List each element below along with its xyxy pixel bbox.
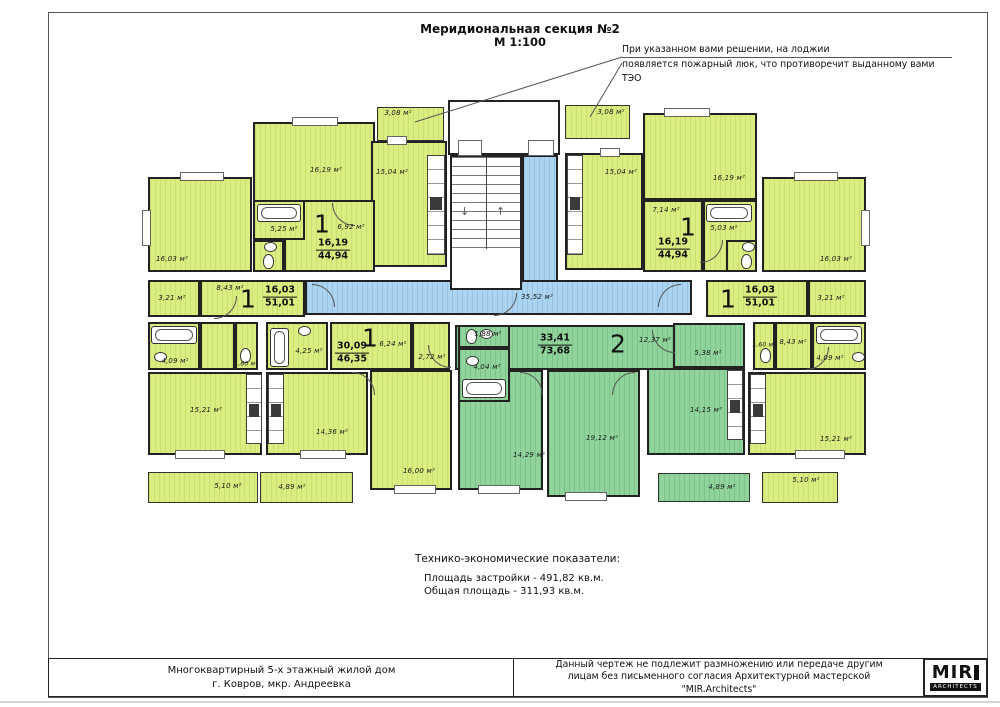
apartment-areas: 16,19 44,94 — [316, 238, 350, 263]
kitchen-fixtures-icon — [268, 374, 284, 444]
kitchen-fixtures-icon — [427, 155, 445, 255]
copyright-line: лицам без письменного согласия Архитекту… — [568, 671, 871, 683]
bathtub-icon — [151, 326, 197, 344]
room-area-label: 15,21 м² — [190, 406, 222, 414]
room-area-label: 3,21 м² — [817, 294, 844, 302]
apartment-number: 2 — [610, 330, 626, 359]
apartment-areas: 16,19 44,94 — [656, 237, 690, 262]
living-area-value: 16,03 — [743, 285, 777, 298]
room-area-label: 15,21 м² — [820, 435, 852, 443]
kitchen-fixtures-icon — [246, 374, 262, 444]
title-line: Меридиональная секция №2 — [380, 22, 660, 36]
window — [394, 485, 436, 494]
room-area-label: 6,24 м² — [379, 340, 406, 348]
hall-small-mid-left — [200, 322, 235, 370]
apartment-areas: 33,41 73,68 — [538, 333, 572, 358]
titleblock-copyright: Данный чертеж не подлежит размножению ил… — [513, 658, 925, 697]
copyright-line: Данный чертеж не подлежит размножению ил… — [555, 659, 882, 671]
apartment-number: 1 — [240, 285, 256, 314]
apartment-areas: 30,09 46,35 — [335, 341, 369, 366]
window — [478, 485, 520, 494]
logo-wordmark: MIR — [932, 664, 979, 682]
living-area-value: 16,03 — [263, 285, 297, 298]
apartment-number: 1 — [720, 285, 736, 314]
copyright-line: "MIR.Architects" — [682, 684, 757, 696]
sheet-bottom-edge — [0, 701, 1000, 703]
living-area-value: 16,19 — [316, 238, 350, 251]
balcony-door — [600, 148, 620, 157]
room-area-label: 16,19 м² — [310, 166, 342, 174]
room-area-label: 4,89 м² — [278, 483, 305, 491]
room-area-label: 5,10 м² — [214, 482, 241, 490]
apartment-areas: 16,03 51,01 — [743, 285, 777, 310]
window — [794, 172, 838, 181]
room-area-label: 14,29 м² — [513, 451, 545, 459]
living-area-value: 30,09 — [335, 341, 369, 354]
scale-label: М 1:100 — [380, 36, 660, 50]
sink-icon — [264, 242, 277, 252]
living-area-value: 16,19 — [656, 237, 690, 250]
total-area-value: 44,94 — [316, 251, 350, 263]
bathtub-icon — [257, 204, 301, 222]
annotation-line2: появляется пожарный люк, что противоречи… — [622, 58, 952, 85]
titleblock-project: Многоквартирный 5-х этажный жилой дом г.… — [48, 658, 515, 697]
window — [861, 210, 870, 246]
room-area-label: 3,08 м² — [384, 109, 411, 117]
bathtub-icon — [270, 328, 289, 367]
balcony-apt2 — [658, 473, 750, 502]
room-area-label: 3,08 м² — [597, 108, 624, 116]
total-area-value: 46,35 — [335, 354, 369, 366]
room-area-label: 14,36 м² — [316, 428, 348, 436]
room-area-label: 15,04 м² — [376, 168, 408, 176]
room-area-label: 12,37 м² — [639, 336, 671, 344]
indicator-row: Общая площадь - 311,93 кв.м. — [424, 585, 675, 599]
indicator-row: Площадь застройки - 491,82 кв.м. — [424, 572, 675, 586]
room-area-label: 4,04 м² — [473, 363, 500, 371]
balcony-low-left — [260, 472, 353, 503]
kitchen-fixtures-icon — [750, 374, 766, 444]
entry-door-left — [458, 140, 482, 156]
room-area-label: 5,25 м² — [270, 225, 297, 233]
sink-icon — [852, 352, 865, 362]
room-area-label: 4,09 м² — [161, 357, 188, 365]
window — [664, 108, 710, 117]
room-area-label: 4,89 м² — [708, 483, 735, 491]
window — [565, 492, 607, 501]
stair-down-arrow-icon: ↓ — [460, 205, 469, 218]
living-area-value: 33,41 — [538, 333, 572, 346]
toilet-icon — [263, 254, 274, 269]
room-area-label: 7,14 м² — [652, 206, 679, 214]
mir-architects-logo: MIR ARCHITECTS — [923, 658, 988, 697]
corridor-stair-link — [522, 155, 558, 282]
room-area-label: 19,12 м² — [586, 434, 618, 442]
kitchen-fixtures-icon — [727, 370, 743, 440]
stairwell — [450, 155, 522, 290]
window — [142, 210, 151, 246]
room-area-label: 5,38 м² — [694, 349, 721, 357]
tech-econ-indicators: Технико-экономические показатели: Площад… — [415, 553, 675, 599]
bathtub-icon — [462, 379, 506, 398]
sink-icon — [298, 326, 311, 336]
room-area-label: 1,88 м² — [474, 330, 501, 338]
balcony-door — [175, 450, 225, 459]
room-area-label: 8,43 м² — [779, 338, 806, 346]
room-area-label: 1,60 м² — [752, 342, 776, 349]
balcony-door — [387, 136, 407, 145]
room-area-label: 3,21 м² — [158, 294, 185, 302]
indicators-heading: Технико-экономические показатели: — [415, 553, 675, 567]
room-area-label: 16,03 м² — [156, 255, 188, 263]
room-area-label: 16,19 м² — [713, 174, 745, 182]
stair-up-arrow-icon: ↑ — [496, 205, 505, 218]
total-area-value: 44,94 — [656, 250, 690, 262]
room-area-label: 16,03 м² — [820, 255, 852, 263]
room-area-label: 15,04 м² — [605, 168, 637, 176]
room-area-label: 1,60 м² — [234, 361, 258, 368]
balcony-door — [300, 450, 346, 459]
window — [292, 117, 338, 126]
bathtub-icon — [706, 204, 752, 222]
room-area-label: 16,00 м² — [403, 467, 435, 475]
room-area-label: 5,10 м² — [792, 476, 819, 484]
room-area-label: 2,72 м² — [418, 353, 445, 361]
room-area-label: 6,92 м² — [337, 223, 364, 231]
kitchen-fixtures-icon — [567, 155, 583, 255]
project-location: г. Ковров, мкр. Андреевка — [212, 678, 351, 692]
toilet-icon — [741, 254, 752, 269]
room-area-label: 4,09 м² — [816, 354, 843, 362]
entry-door-right — [528, 140, 554, 156]
room-area-label: 4,25 м² — [295, 347, 322, 355]
toilet-icon — [760, 348, 771, 363]
room-area-label: 5,03 м² — [710, 224, 737, 232]
room-living-top-left — [253, 122, 375, 202]
total-area-value: 73,68 — [538, 346, 572, 358]
sink-icon — [742, 242, 755, 252]
apartment-number: 1 — [314, 210, 330, 239]
corridor-area-label: 35,52 м² — [521, 293, 553, 301]
bathtub-icon — [816, 326, 862, 344]
apartment-areas: 16,03 51,01 — [263, 285, 297, 310]
window — [180, 172, 224, 181]
room-living-top-right — [643, 113, 757, 200]
drawing-title: Меридиональная секция №2 М 1:100 — [380, 22, 660, 50]
annotation-note: При указанном вами решении, на лоджии по… — [622, 43, 952, 85]
balcony-door — [795, 450, 845, 459]
annotation-line1: При указанном вами решении, на лоджии — [622, 43, 952, 58]
drawing-sheet: Меридиональная секция №2 М 1:100 При ука… — [0, 0, 1000, 707]
project-name: Многоквартирный 5-х этажный жилой дом — [168, 664, 396, 678]
room-area-label: 14,15 м² — [690, 406, 722, 414]
stair-flight-divider — [486, 157, 487, 249]
logo-subtitle: ARCHITECTS — [930, 683, 980, 691]
total-area-value: 51,01 — [263, 298, 297, 310]
room-small-apt2 — [673, 323, 745, 368]
total-area-value: 51,01 — [743, 298, 777, 310]
